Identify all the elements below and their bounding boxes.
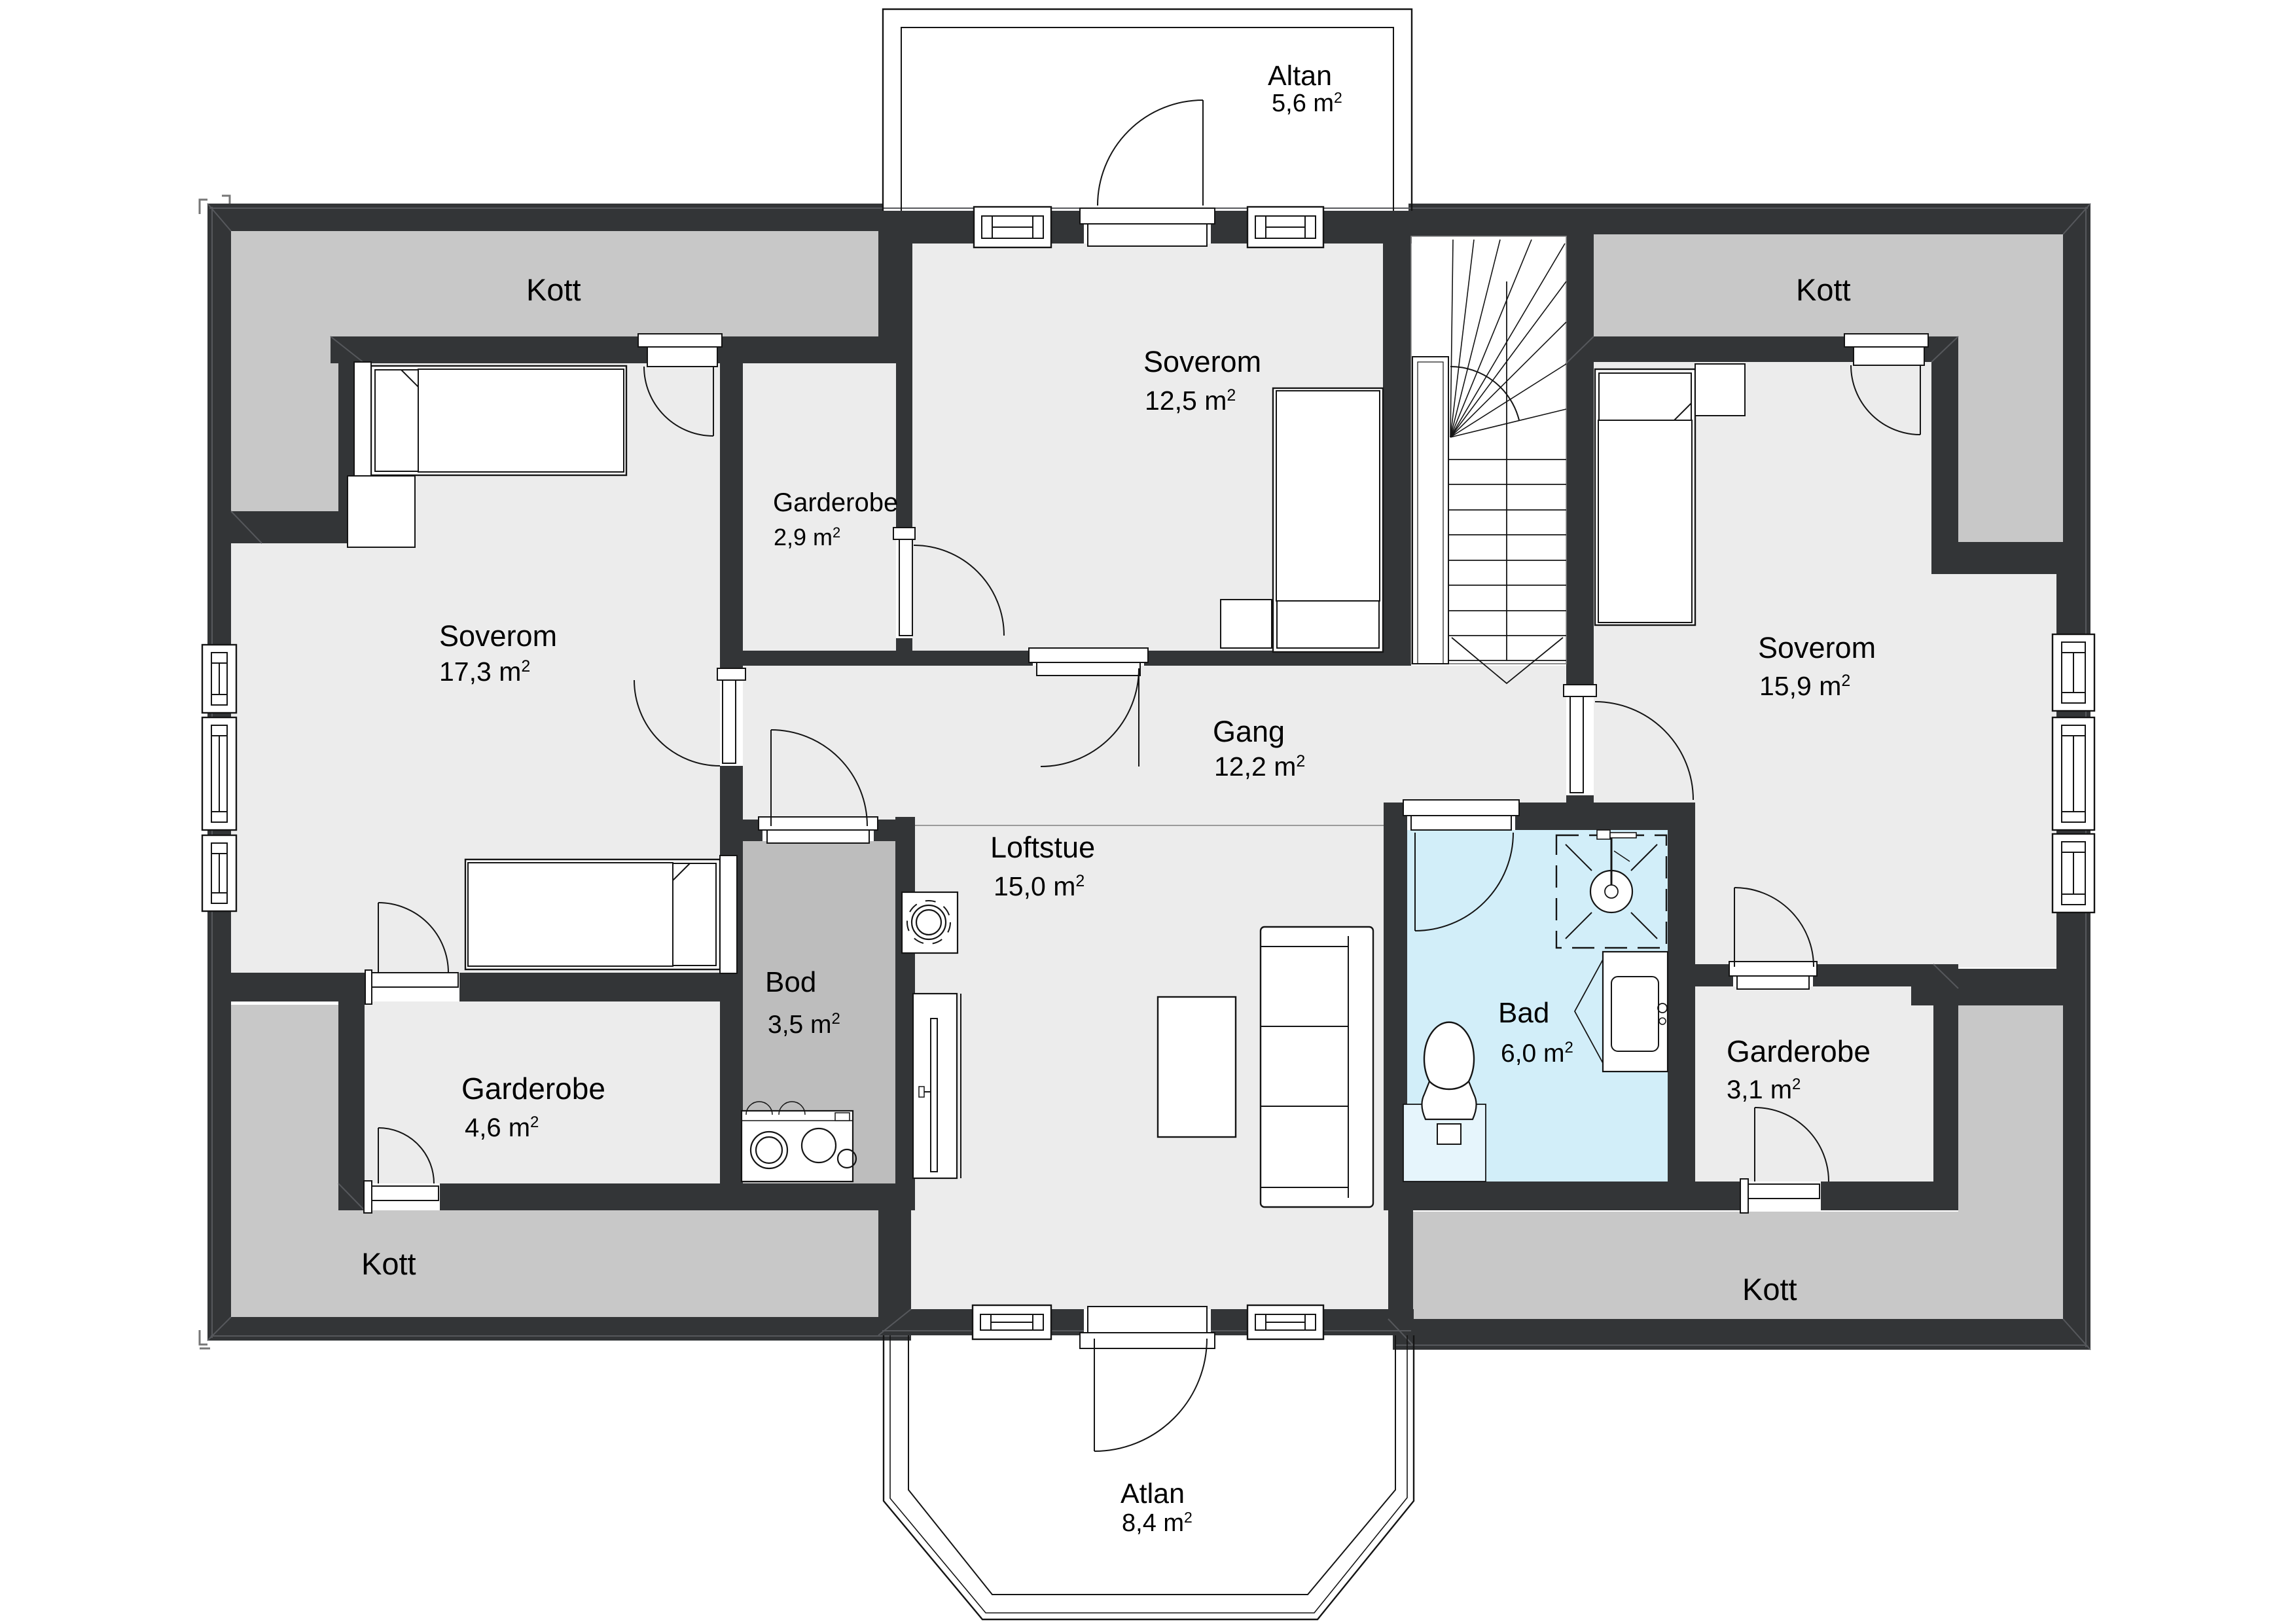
svg-text:Soverom: Soverom xyxy=(1143,345,1261,378)
svg-text:12,2 m2: 12,2 m2 xyxy=(1214,751,1305,782)
svg-text:4,6 m2: 4,6 m2 xyxy=(465,1113,539,1142)
svg-text:3,1 m2: 3,1 m2 xyxy=(1727,1075,1801,1104)
svg-text:15,0 m2: 15,0 m2 xyxy=(994,871,1085,901)
svg-text:Loftstue: Loftstue xyxy=(990,831,1095,864)
svg-text:5,6 m2: 5,6 m2 xyxy=(1272,89,1342,117)
svg-text:Kott: Kott xyxy=(526,272,581,307)
svg-text:Bod: Bod xyxy=(765,966,816,998)
svg-text:Soverom: Soverom xyxy=(1758,631,1876,664)
svg-text:Garderobe: Garderobe xyxy=(773,488,898,517)
svg-text:Soverom: Soverom xyxy=(439,619,557,653)
svg-text:Kott: Kott xyxy=(1796,272,1851,307)
svg-text:Kott: Kott xyxy=(1742,1272,1797,1307)
svg-text:6,0 m2: 6,0 m2 xyxy=(1501,1039,1573,1068)
svg-text:Bad: Bad xyxy=(1498,997,1549,1029)
svg-text:15,9 m2: 15,9 m2 xyxy=(1759,671,1850,701)
svg-text:Kott: Kott xyxy=(361,1246,416,1281)
svg-text:17,3 m2: 17,3 m2 xyxy=(439,657,530,687)
svg-text:12,5 m2: 12,5 m2 xyxy=(1145,386,1236,416)
svg-text:Gang: Gang xyxy=(1213,715,1285,748)
svg-text:Altan: Altan xyxy=(1268,60,1332,92)
svg-text:Garderobe: Garderobe xyxy=(1727,1034,1871,1068)
svg-text:Garderobe: Garderobe xyxy=(461,1072,605,1106)
svg-text:Atlan: Atlan xyxy=(1121,1478,1185,1509)
svg-text:3,5 m2: 3,5 m2 xyxy=(768,1010,840,1039)
svg-text:2,9 m2: 2,9 m2 xyxy=(774,524,840,550)
svg-text:8,4 m2: 8,4 m2 xyxy=(1122,1509,1193,1537)
